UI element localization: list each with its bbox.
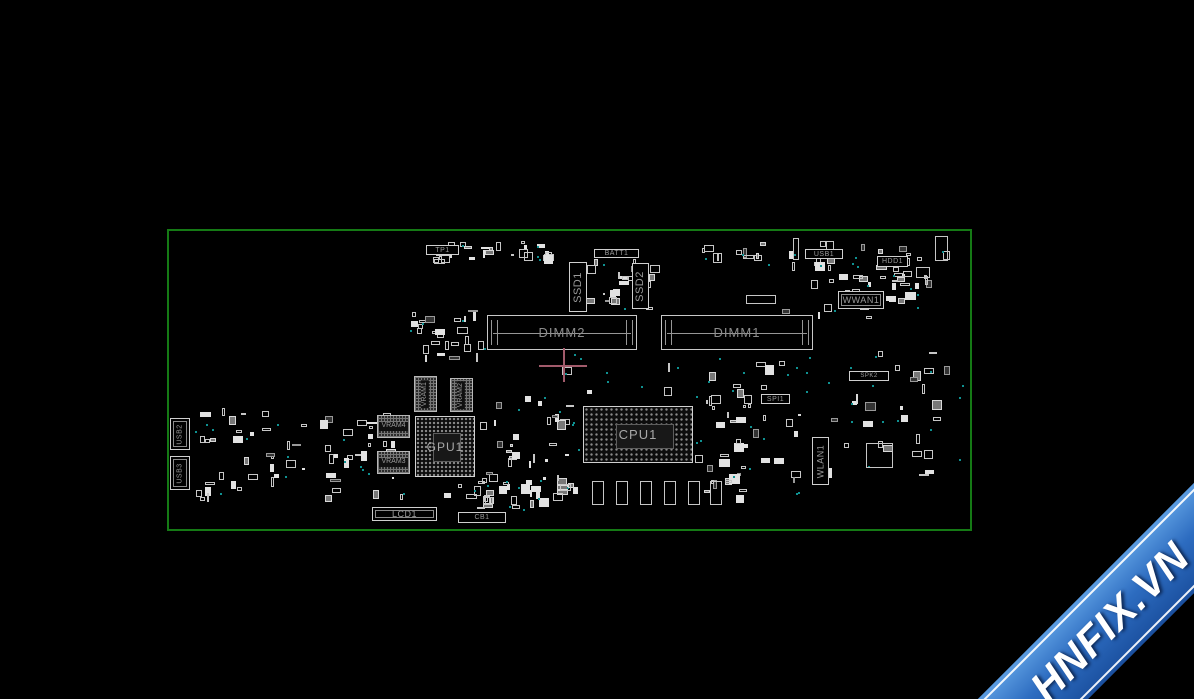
net-dot — [462, 320, 464, 322]
component-part — [566, 405, 573, 408]
component-part — [786, 419, 793, 427]
component-part — [425, 355, 428, 362]
net-dot — [509, 506, 511, 508]
chip-label: VRAM3 — [379, 458, 407, 466]
net-dot — [850, 367, 852, 369]
net-dot — [537, 256, 539, 258]
component-part — [880, 276, 886, 279]
connector-label: WWAN1 — [843, 296, 880, 305]
net-dot — [962, 385, 964, 387]
component-part — [736, 417, 746, 424]
chip-vram3[interactable]: VRAM3 — [377, 451, 410, 474]
connector-tp1[interactable]: TP1 — [426, 245, 459, 255]
component-part — [899, 246, 908, 252]
component-part — [622, 276, 628, 280]
component-part — [210, 438, 216, 442]
net-dot — [559, 411, 561, 413]
net-dot — [857, 266, 859, 268]
connector-label: CB1 — [474, 514, 489, 521]
component-part — [464, 246, 472, 250]
bga-cpu1[interactable]: CPU1 — [583, 406, 693, 463]
component-part — [711, 395, 721, 404]
component-part — [592, 481, 604, 505]
component-part — [719, 459, 730, 468]
component-part — [229, 416, 236, 425]
connector-label: TP1 — [435, 247, 449, 254]
component-part — [244, 457, 249, 465]
net-dot — [806, 372, 808, 374]
component-part — [892, 280, 899, 282]
component-part — [743, 405, 747, 408]
connector-ssd2[interactable]: SSD2 — [632, 263, 649, 309]
component-part — [725, 480, 731, 484]
slot-endcap — [665, 320, 672, 345]
net-dot — [580, 358, 582, 360]
net-dot — [930, 429, 932, 431]
component-part — [524, 245, 527, 249]
connector-lcd1[interactable]: LCD1 — [372, 507, 437, 521]
component-part — [746, 295, 776, 304]
component-part — [924, 450, 933, 460]
component-part — [929, 352, 937, 354]
component-part — [320, 420, 328, 429]
component-part — [853, 275, 863, 280]
component-part — [793, 238, 799, 260]
component-part — [545, 459, 548, 462]
net-dot — [696, 396, 698, 398]
component-part — [915, 283, 919, 289]
connector-label: USB3 — [177, 463, 184, 483]
net-dot — [212, 429, 214, 431]
component-part — [412, 312, 416, 317]
component-part — [476, 353, 479, 362]
component-part — [521, 241, 525, 244]
net-dot — [641, 386, 643, 388]
connector-wwan1[interactable]: WWAN1 — [838, 291, 884, 309]
component-part — [435, 329, 445, 335]
component-part — [765, 365, 774, 375]
net-dot — [574, 354, 576, 356]
component-part — [901, 415, 908, 422]
net-dot — [206, 424, 208, 426]
component-part — [434, 259, 444, 264]
chip-label: VRAM1 — [421, 380, 429, 408]
net-dot — [806, 391, 808, 393]
component-part — [233, 436, 242, 443]
net-dot — [285, 476, 287, 478]
component-part — [325, 445, 331, 453]
net-dot — [742, 254, 744, 256]
component-part — [863, 421, 873, 427]
connector-label: LCD1 — [392, 510, 417, 519]
component-part — [616, 481, 628, 505]
net-dot — [523, 509, 525, 511]
component-part — [774, 458, 784, 464]
connector-label: BATT1 — [605, 250, 629, 257]
connector-usb1[interactable]: USB1 — [805, 249, 843, 259]
component-part — [411, 321, 419, 327]
component-part — [543, 477, 546, 480]
component-part — [262, 428, 271, 431]
net-dot — [606, 372, 608, 374]
component-part — [473, 312, 476, 321]
component-part — [933, 417, 941, 421]
component-part — [301, 424, 306, 427]
connector-batt1[interactable]: BATT1 — [594, 249, 639, 258]
net-dot — [537, 246, 539, 248]
component-part — [916, 434, 920, 444]
component-part — [733, 384, 742, 388]
component-part — [270, 464, 273, 472]
chip-vram4[interactable]: VRAM4 — [377, 415, 410, 438]
component-part — [739, 489, 747, 492]
component-part — [587, 265, 596, 274]
component-part — [200, 412, 211, 416]
connector-hdd1[interactable]: HDD1 — [877, 256, 908, 267]
component-part — [552, 415, 558, 418]
component-part — [664, 481, 676, 505]
net-dot — [763, 438, 765, 440]
component-part — [219, 472, 224, 481]
net-dot — [820, 265, 822, 267]
component-part — [508, 458, 513, 468]
net-dot — [851, 403, 853, 405]
dimm-slot-dimm1[interactable]: DIMM1 — [661, 315, 813, 350]
component-part — [423, 345, 429, 355]
component-part — [744, 395, 752, 404]
net-dot — [362, 469, 364, 471]
net-dot — [917, 294, 919, 296]
net-dot — [796, 367, 798, 369]
component-part — [609, 297, 618, 305]
component-part — [486, 472, 493, 474]
component-part — [910, 377, 918, 382]
net-dot — [749, 468, 751, 470]
component-part — [743, 444, 747, 449]
net-dot — [872, 385, 874, 387]
component-part — [477, 507, 485, 509]
net-dot — [246, 438, 248, 440]
net-dot — [343, 439, 345, 441]
net-dot — [195, 431, 197, 433]
component-part — [431, 341, 440, 344]
net-dot — [882, 421, 884, 423]
component-part — [866, 443, 893, 468]
component-part — [782, 309, 790, 314]
component-part — [944, 366, 950, 375]
net-dot — [422, 323, 424, 325]
net-dot — [538, 498, 540, 500]
net-dot — [368, 473, 370, 475]
net-dot — [484, 348, 486, 350]
component-part — [932, 400, 942, 410]
component-part — [383, 441, 387, 447]
component-part — [779, 361, 785, 366]
component-part — [892, 283, 896, 290]
component-part — [710, 481, 722, 505]
component-part — [573, 487, 577, 494]
component-part — [760, 242, 766, 246]
component-part — [702, 248, 706, 254]
component-part — [893, 267, 899, 272]
net-dot — [828, 382, 830, 384]
net-dot — [917, 307, 919, 309]
connector-cb1[interactable]: CB1 — [458, 512, 506, 523]
component-part — [357, 420, 367, 426]
component-part — [207, 493, 209, 502]
net-dot — [875, 356, 877, 358]
component-part — [368, 443, 371, 447]
component-part — [865, 402, 876, 410]
component-part — [496, 402, 502, 409]
net-dot — [220, 493, 222, 495]
component-part — [798, 414, 801, 416]
component-part — [222, 408, 225, 416]
net-dot — [344, 461, 346, 463]
component-part — [445, 341, 449, 350]
component-part — [709, 396, 712, 405]
component-part — [292, 444, 301, 447]
component-part — [533, 454, 536, 463]
net-dot — [959, 397, 961, 399]
net-dot — [410, 330, 412, 332]
component-part — [866, 316, 872, 319]
component-part — [539, 498, 549, 507]
component-part — [519, 249, 528, 258]
chip-label: VRAM4 — [379, 422, 407, 430]
component-part — [544, 255, 553, 264]
net-dot — [607, 381, 609, 383]
component-part — [464, 344, 471, 353]
net-dot — [277, 424, 279, 426]
net-dot — [798, 492, 800, 494]
component-part — [512, 452, 520, 458]
component-part — [494, 420, 496, 426]
component-part — [736, 495, 744, 503]
net-dot — [732, 390, 734, 392]
component-part — [820, 241, 826, 246]
component-part — [640, 481, 652, 505]
component-part — [743, 255, 754, 259]
component-part — [332, 488, 341, 493]
net-dot — [719, 358, 721, 360]
component-part — [878, 351, 883, 356]
bga-gpu1[interactable]: GPU1 — [415, 416, 475, 477]
component-part — [547, 417, 550, 425]
connector-wlan1[interactable]: WLAN1 — [812, 437, 829, 485]
net-dot — [539, 259, 541, 261]
net-dot — [403, 493, 405, 495]
net-dot — [544, 397, 546, 399]
connector-ssd1[interactable]: SSD1 — [569, 262, 587, 312]
component-part — [737, 389, 743, 398]
cursor-crosshair-v — [563, 348, 565, 382]
net-dot — [834, 310, 836, 312]
component-part — [695, 455, 703, 463]
component-part — [707, 465, 713, 472]
component-part — [922, 384, 924, 393]
bga-label: CPU1 — [584, 407, 692, 462]
slot-label: DIMM2 — [539, 325, 586, 340]
net-dot — [852, 263, 854, 265]
net-dot — [768, 264, 770, 266]
component-part — [237, 487, 241, 491]
component-part — [712, 406, 715, 410]
component-part — [794, 431, 797, 437]
component-part — [248, 474, 259, 481]
component-part — [856, 394, 859, 403]
component-part — [480, 422, 487, 430]
net-dot — [743, 372, 745, 374]
component-part — [748, 404, 751, 408]
component-part — [763, 415, 765, 421]
chip-vram1[interactable]: VRAM1 — [414, 376, 437, 412]
component-part — [741, 466, 746, 469]
net-dot — [360, 466, 362, 468]
connector-spi1[interactable]: SPI1 — [761, 394, 790, 404]
component-part — [844, 443, 848, 448]
connector-label: SPK2 — [860, 373, 877, 379]
component-part — [373, 490, 379, 499]
net-dot — [487, 485, 489, 487]
component-part — [200, 436, 205, 442]
net-dot — [518, 487, 520, 489]
component-part — [503, 482, 508, 485]
net-dot — [474, 490, 476, 492]
component-part — [716, 422, 724, 428]
connector-label: USB1 — [814, 251, 834, 258]
component-part — [916, 267, 930, 278]
net-dot — [787, 374, 789, 376]
slot-label: DIMM1 — [714, 325, 761, 340]
component-part — [496, 242, 501, 251]
component-part — [457, 327, 468, 335]
component-part — [861, 244, 865, 251]
component-part — [688, 481, 700, 505]
component-part — [325, 495, 332, 502]
component-part — [664, 387, 672, 396]
component-part — [818, 312, 820, 320]
component-part — [271, 477, 273, 486]
component-part — [444, 493, 451, 498]
connector-spk2[interactable]: SPK2 — [849, 371, 889, 381]
component-part — [343, 429, 353, 437]
component-part — [510, 444, 513, 447]
component-part — [793, 477, 795, 483]
component-part — [619, 281, 629, 285]
connector-label: SSD1 — [573, 272, 584, 303]
component-part — [369, 426, 373, 430]
component-part — [497, 441, 503, 447]
net-dot — [750, 426, 752, 428]
watermark-ribbon: HNFIX.VN — [969, 481, 1194, 699]
component-part — [368, 434, 372, 440]
component-part — [454, 318, 461, 321]
component-part — [889, 296, 897, 302]
component-part — [553, 493, 563, 501]
component-part — [451, 342, 459, 346]
component-part — [736, 439, 741, 444]
component-part — [756, 253, 759, 259]
component-part — [425, 316, 436, 323]
component-part — [811, 280, 818, 289]
component-part — [330, 479, 341, 482]
component-part — [525, 396, 530, 402]
net-dot — [677, 367, 679, 369]
slot-endcap — [802, 320, 809, 345]
bga-label: GPU1 — [416, 417, 474, 476]
component-part — [761, 385, 767, 391]
connector-label: SPI1 — [767, 396, 784, 403]
component-part — [761, 458, 770, 463]
component-part — [326, 473, 336, 478]
component-part — [334, 454, 338, 458]
component-part — [912, 451, 922, 458]
slot-endcap — [626, 320, 633, 345]
connector-usb3[interactable]: USB3 — [170, 456, 190, 490]
component-part — [302, 468, 305, 471]
component-part — [917, 257, 922, 261]
component-part — [478, 481, 485, 485]
component-part — [521, 484, 530, 494]
component-part — [458, 484, 462, 488]
net-dot — [624, 308, 626, 310]
component-part — [529, 461, 531, 468]
component-part — [485, 250, 494, 256]
component-part — [391, 441, 396, 448]
component-part — [727, 412, 730, 419]
component-part — [557, 475, 559, 481]
component-part — [565, 454, 569, 456]
component-part — [704, 245, 714, 252]
component-part — [720, 454, 729, 457]
component-part — [900, 283, 910, 287]
net-dot — [573, 422, 575, 424]
connector-label: WLAN1 — [816, 444, 825, 478]
component-part — [831, 418, 838, 422]
connector-label: HDD1 — [882, 258, 903, 265]
component-part — [392, 477, 394, 479]
component-part — [935, 236, 948, 261]
component-part — [538, 401, 542, 406]
component-part — [489, 474, 498, 482]
net-dot — [893, 275, 895, 277]
component-part — [262, 411, 268, 417]
component-part — [250, 432, 254, 436]
component-part — [483, 496, 491, 505]
net-dot — [867, 285, 869, 287]
net-dot — [518, 409, 520, 411]
component-part — [560, 484, 571, 491]
component-part — [603, 293, 606, 296]
component-part — [361, 451, 367, 460]
component-part — [274, 474, 279, 478]
component-part — [839, 274, 848, 281]
component-part — [511, 496, 517, 505]
chip-vram2[interactable]: VRAM2 — [450, 378, 473, 412]
net-dot — [565, 373, 567, 375]
component-part — [200, 497, 205, 501]
net-dot — [603, 264, 605, 266]
component-part — [587, 390, 592, 394]
net-dot — [910, 288, 912, 290]
net-dot — [897, 420, 899, 422]
dimm-slot-dimm2[interactable]: DIMM2 — [487, 315, 637, 350]
component-part — [736, 250, 742, 255]
connector-usb2[interactable]: USB2 — [170, 418, 190, 450]
net-dot — [540, 480, 542, 482]
component-part — [900, 406, 903, 410]
